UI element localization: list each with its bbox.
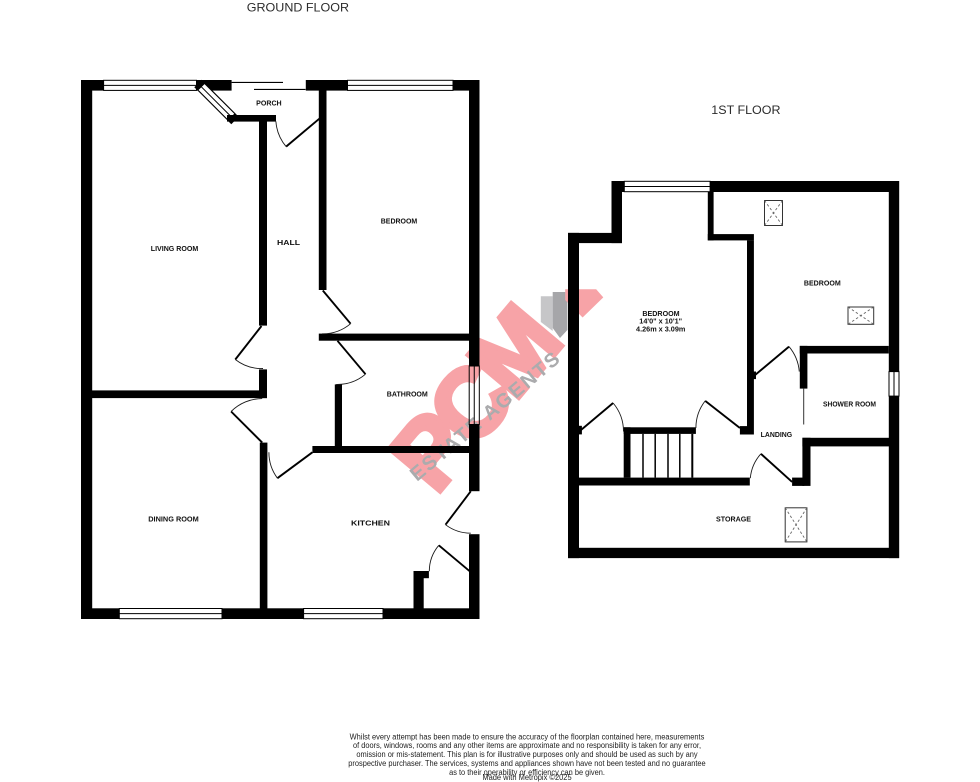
svg-text:SHOWER ROOM: SHOWER ROOM (823, 399, 876, 408)
svg-text:STORAGE: STORAGE (716, 515, 751, 524)
svg-text:4.26m x 3.09m: 4.26m x 3.09m (636, 324, 685, 333)
svg-text:LANDING: LANDING (761, 430, 793, 439)
svg-text:Whilst every attempt has been: Whilst every attempt has been made to en… (350, 732, 705, 741)
svg-text:BEDROOM: BEDROOM (381, 216, 418, 225)
svg-text:LIVING ROOM: LIVING ROOM (151, 244, 199, 253)
svg-text:KITCHEN: KITCHEN (351, 518, 391, 527)
svg-text:HALL: HALL (277, 238, 300, 247)
svg-text:Made with Metropix ©2025: Made with Metropix ©2025 (482, 773, 572, 782)
svg-text:of doors, windows, rooms and a: of doors, windows, rooms and any other i… (353, 741, 701, 750)
svg-text:prospective purchaser. The ser: prospective purchaser. The services, sys… (348, 759, 705, 768)
svg-text:omission or mis-statement. Thi: omission or mis-statement. This plan is … (356, 750, 697, 759)
svg-text:GROUND FLOOR: GROUND FLOOR (247, 1, 349, 15)
svg-text:1ST FLOOR: 1ST FLOOR (711, 103, 780, 117)
svg-text:PORCH: PORCH (256, 98, 282, 107)
svg-text:DINING ROOM: DINING ROOM (148, 514, 199, 523)
svg-text:BEDROOM: BEDROOM (804, 278, 841, 287)
